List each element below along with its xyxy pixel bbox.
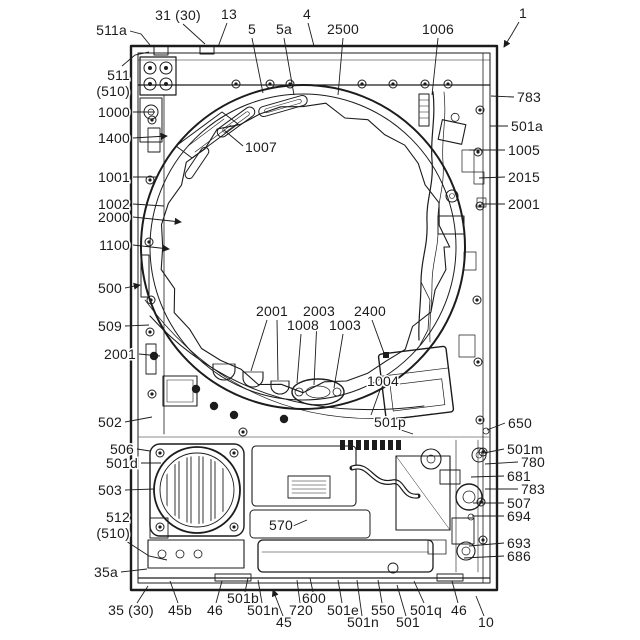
ref-number-shape: 1000 bbox=[98, 104, 130, 120]
ref-number-shape: 2015 bbox=[508, 169, 540, 185]
ref-label-46: 46 bbox=[451, 581, 467, 618]
tub-lower-tray bbox=[141, 255, 454, 420]
screws-shape bbox=[446, 82, 449, 85]
ref-label-503: 503 bbox=[98, 482, 154, 498]
screws-shape bbox=[478, 204, 481, 207]
ref-label-511a: 511a bbox=[96, 22, 150, 45]
ref-number-shape: 1007 bbox=[245, 139, 277, 155]
ref-number: 45b bbox=[168, 602, 192, 618]
toothed-strip-shape bbox=[340, 440, 345, 450]
leader-line bbox=[504, 22, 519, 47]
screws-shape bbox=[478, 108, 481, 111]
right-machinery-shape bbox=[428, 540, 446, 554]
fan-grille-shape bbox=[203, 452, 211, 530]
screws-shape bbox=[158, 451, 161, 454]
screws-shape bbox=[150, 118, 153, 121]
screws-shape bbox=[241, 430, 244, 433]
ref-number-shape: 694 bbox=[507, 508, 531, 524]
hinge-bracket-shape bbox=[164, 66, 168, 70]
screws-shape bbox=[481, 538, 484, 541]
screw-icon bbox=[210, 402, 218, 410]
center-ducts-shape bbox=[176, 550, 184, 558]
ref-number: 511(510) bbox=[96, 67, 130, 99]
ref-number: 1007 bbox=[245, 139, 277, 155]
ref-number-shape: 31 (30) bbox=[155, 7, 201, 23]
ref-label-550: 550 bbox=[371, 580, 395, 618]
center-ducts-shape bbox=[194, 550, 202, 558]
ref-label-46: 46 bbox=[207, 581, 223, 618]
center-ducts-shape bbox=[288, 476, 330, 498]
ref-number-shape: 501n bbox=[247, 602, 279, 618]
ref-number-shape: 1400 bbox=[98, 130, 130, 146]
screws-shape bbox=[391, 82, 394, 85]
hinge-bracket bbox=[140, 46, 214, 152]
ref-number: 1005 bbox=[508, 142, 540, 158]
toothed-strip-shape bbox=[372, 440, 377, 450]
ref-number-shape: 511a bbox=[96, 22, 127, 38]
ref-label-2015: 2015 bbox=[479, 169, 540, 185]
fan-grille-shape bbox=[215, 452, 223, 530]
toothed-strip-shape bbox=[396, 440, 401, 450]
ref-number: 511a bbox=[96, 22, 127, 38]
right-duct-shape bbox=[450, 194, 455, 199]
ref-number-shape: 35 (30) bbox=[108, 602, 154, 618]
right-machinery bbox=[340, 428, 489, 572]
leader-line bbox=[121, 569, 147, 572]
valve bbox=[438, 111, 468, 144]
fan-grille-shape bbox=[191, 452, 199, 530]
leader-line bbox=[218, 23, 227, 47]
ref-number: 35a bbox=[94, 564, 118, 580]
ref-number: 10 bbox=[478, 614, 494, 630]
screws-shape bbox=[476, 360, 479, 363]
ref-number: 501q bbox=[410, 602, 442, 618]
screws-shape bbox=[423, 82, 426, 85]
ref-number-shape: 2400 bbox=[354, 303, 386, 319]
ref-number-shape: 1008 bbox=[287, 317, 319, 333]
drum-front-panel-shape bbox=[141, 85, 465, 409]
hinge-bracket-shape bbox=[164, 82, 168, 86]
ref-number-shape: 501q bbox=[410, 602, 442, 618]
ref-number: 550 bbox=[371, 602, 395, 618]
leader-line bbox=[293, 520, 307, 526]
drum-front-panel-shape bbox=[161, 103, 450, 393]
ref-number-shape: 10 bbox=[478, 614, 494, 630]
ref-number: 13 bbox=[221, 6, 237, 22]
ref-number: 501p bbox=[374, 414, 406, 430]
ref-number: 1100 bbox=[99, 237, 130, 253]
ref-label-13: 13 bbox=[218, 6, 237, 47]
leader-line bbox=[414, 581, 424, 603]
screws-shape bbox=[232, 525, 235, 528]
ref-label-1400: 1400 bbox=[98, 130, 167, 146]
ref-number: 509 bbox=[98, 318, 122, 334]
fan-grille-shape bbox=[179, 452, 187, 530]
ref-number-shape: 13 bbox=[221, 6, 237, 22]
leader-line bbox=[452, 581, 458, 603]
drum-front-panel-shape bbox=[195, 125, 231, 152]
ref-number: 1006 bbox=[422, 21, 454, 37]
screws-shape bbox=[232, 451, 235, 454]
ref-number: 1004 bbox=[367, 373, 399, 389]
screws-shape bbox=[475, 298, 478, 301]
ref-label-500: 500 bbox=[98, 280, 140, 296]
ref-label-509: 509 bbox=[98, 318, 149, 334]
ref-number-shape: 1004 bbox=[367, 373, 399, 389]
screws-shape bbox=[288, 82, 291, 85]
toothed-strip-shape bbox=[364, 440, 369, 450]
ref-label-4: 4 bbox=[303, 6, 314, 46]
drum-front-panel-shape bbox=[419, 94, 429, 126]
ref-label-600: 600 bbox=[302, 578, 326, 606]
ref-number-shape: 35a bbox=[94, 564, 118, 580]
ref-number: 570 bbox=[269, 517, 293, 533]
drum-front-panel bbox=[141, 85, 465, 409]
screws-shape bbox=[478, 418, 481, 421]
ref-label-501q: 501q bbox=[410, 581, 442, 618]
ref-label-694: 694 bbox=[472, 508, 531, 524]
ref-number: 512(510) bbox=[96, 509, 130, 541]
ref-number: 35 (30) bbox=[108, 602, 154, 618]
tub-lower-tray-shape bbox=[333, 388, 341, 396]
screws-shape bbox=[147, 240, 150, 243]
ref-number: 4 bbox=[303, 6, 311, 22]
right-machinery-shape bbox=[421, 449, 441, 469]
leader-line bbox=[401, 430, 413, 434]
ref-number: 1400 bbox=[98, 130, 130, 146]
ref-label-511-510: 511(510) bbox=[96, 52, 149, 99]
ref-number-shape: 500 bbox=[98, 280, 122, 296]
vent-slot bbox=[258, 94, 309, 117]
ref-label-1001: 1001 bbox=[98, 169, 157, 185]
ref-number: 2001 bbox=[256, 303, 288, 319]
right-machinery-shape bbox=[452, 518, 474, 544]
ref-label-45b: 45b bbox=[168, 581, 192, 618]
screw-icon bbox=[230, 411, 238, 419]
ref-number: 501d bbox=[106, 455, 138, 471]
ref-label-2001: 2001 bbox=[251, 303, 288, 380]
ref-number: 502 bbox=[98, 414, 122, 430]
ref-number: 2015 bbox=[508, 169, 540, 185]
ref-number-shape: 1001 bbox=[98, 169, 130, 185]
screws-shape bbox=[360, 82, 363, 85]
leader-line bbox=[224, 130, 243, 146]
center-ducts-shape bbox=[250, 510, 370, 538]
ref-label-31-30: 31 (30) bbox=[155, 7, 205, 44]
ref-number-shape: 46 bbox=[451, 602, 467, 618]
ref-number: 600 bbox=[302, 590, 326, 606]
screws-shape bbox=[234, 82, 237, 85]
leader-line bbox=[334, 334, 343, 388]
ref-label-1: 1 bbox=[504, 5, 527, 47]
ref-number: 650 bbox=[508, 415, 532, 431]
screw-icon bbox=[280, 415, 288, 423]
ref-number-shape: 650 bbox=[508, 415, 532, 431]
ref-number: 2400 bbox=[354, 303, 386, 319]
ref-label-650: 650 bbox=[487, 415, 532, 431]
ref-number: 2001 bbox=[508, 196, 540, 212]
leader-line bbox=[122, 52, 149, 66]
right-machinery-shape bbox=[468, 514, 474, 520]
drum-front-panel-shape bbox=[188, 119, 224, 146]
leader-line bbox=[297, 334, 301, 383]
ref-label-570: 570 bbox=[269, 517, 307, 533]
ref-number-shape: 46 bbox=[207, 602, 223, 618]
leader-line bbox=[137, 449, 150, 451]
ref-number: 686 bbox=[507, 548, 531, 564]
vent-slot bbox=[184, 146, 211, 180]
right-duct-shape bbox=[462, 150, 474, 172]
ref-number: 501a bbox=[511, 118, 543, 134]
ref-number: 1001 bbox=[98, 169, 130, 185]
ref-number: 1 bbox=[519, 5, 527, 21]
ref-number: 2500 bbox=[327, 21, 359, 37]
ref-number: 1008 bbox=[287, 317, 319, 333]
ref-label-783: 783 bbox=[491, 89, 541, 105]
ref-number: 5 bbox=[248, 21, 256, 37]
toothed-strip-shape bbox=[380, 440, 385, 450]
ref-number-shape: 570 bbox=[269, 517, 293, 533]
ref-number-shape: 600 bbox=[302, 590, 326, 606]
right-machinery-shape bbox=[462, 547, 470, 555]
leader-line bbox=[251, 320, 267, 371]
hinge-bracket-shape bbox=[148, 66, 152, 70]
ref-number: 46 bbox=[451, 602, 467, 618]
ref-number: 5a bbox=[276, 21, 292, 37]
ref-number: 501n bbox=[247, 602, 279, 618]
screws-shape bbox=[149, 298, 152, 301]
hinge-bracket-shape bbox=[140, 57, 176, 95]
ref-number-shape: 501d bbox=[106, 455, 138, 471]
ref-number: 2000 bbox=[98, 209, 130, 225]
screws-shape bbox=[148, 330, 151, 333]
ref-number-shape: 1006 bbox=[422, 21, 454, 37]
hinge-bracket-shape bbox=[154, 46, 168, 55]
ref-number-shape: 686 bbox=[507, 548, 531, 564]
screws-shape bbox=[148, 178, 151, 181]
ref-number-shape: 4 bbox=[303, 6, 311, 22]
ref-number-shape: 501a bbox=[511, 118, 543, 134]
ref-number: 1000 bbox=[98, 104, 130, 120]
right-duct-shape bbox=[459, 335, 475, 357]
center-ducts-shape bbox=[148, 540, 244, 568]
hinge-bracket-shape bbox=[148, 82, 152, 86]
ref-label-502: 502 bbox=[98, 414, 152, 430]
ref-number: 2001 bbox=[104, 346, 136, 362]
center-ducts-shape bbox=[258, 540, 433, 572]
ref-number-shape: 503 bbox=[98, 482, 122, 498]
leader-line bbox=[137, 586, 148, 603]
tub-lower-tray-shape bbox=[163, 376, 197, 406]
leader-line bbox=[471, 476, 504, 477]
ref-number-shape: 45b bbox=[168, 602, 192, 618]
ref-number-shape: 512 bbox=[106, 509, 130, 525]
ref-number-shape: 2001 bbox=[508, 196, 540, 212]
ref-number-shape: 5 bbox=[248, 21, 256, 37]
ref-number: 500 bbox=[98, 280, 122, 296]
ref-label-2003: 2003 bbox=[303, 303, 335, 385]
leader-line bbox=[277, 320, 278, 380]
leader-line bbox=[491, 96, 514, 97]
leader-line bbox=[476, 596, 484, 616]
leader-line bbox=[130, 31, 150, 45]
screws-shape bbox=[268, 82, 271, 85]
ref-number: 694 bbox=[507, 508, 531, 524]
tub-lower-tray-shape bbox=[271, 381, 289, 394]
ref-number: 783 bbox=[517, 89, 541, 105]
leader-line bbox=[125, 325, 149, 326]
ref-number-shape: (510) bbox=[96, 525, 130, 541]
right-machinery-shape bbox=[463, 491, 475, 503]
tub-lower-tray-shape bbox=[306, 386, 330, 398]
ref-number-shape: 2000 bbox=[98, 209, 130, 225]
screws-shape bbox=[476, 150, 479, 153]
ref-label-2500: 2500 bbox=[327, 21, 359, 95]
ref-label-2000: 2000 bbox=[98, 209, 181, 225]
ref-number-shape: 501p bbox=[374, 414, 406, 430]
ref-number: 1003 bbox=[329, 317, 361, 333]
fan-assembly bbox=[150, 444, 244, 536]
vent-slot-shape bbox=[258, 94, 309, 117]
toothed-strip-shape bbox=[388, 440, 393, 450]
leader-line bbox=[216, 581, 222, 603]
toothed-strip bbox=[340, 440, 401, 450]
ref-number-shape: 1100 bbox=[99, 237, 130, 253]
vent-slot-shape bbox=[184, 146, 211, 180]
ref-number-shape: 511 bbox=[107, 67, 130, 83]
ref-label-1100: 1100 bbox=[99, 237, 169, 253]
center-ducts-shape bbox=[158, 550, 166, 558]
leader-line bbox=[183, 24, 205, 44]
ref-number-shape: (510) bbox=[96, 83, 130, 99]
leader-line bbox=[372, 320, 384, 353]
ref-number-shape: 783 bbox=[517, 89, 541, 105]
right-duct bbox=[419, 92, 486, 357]
leader-line bbox=[308, 23, 314, 46]
ref-number-shape: 509 bbox=[98, 318, 122, 334]
fan-assembly-shape bbox=[150, 444, 244, 536]
valve-shape bbox=[450, 113, 459, 122]
patent-figure: 511a31 (30)1355a4250010061511(510)100014… bbox=[0, 0, 640, 640]
ref-number: 503 bbox=[98, 482, 122, 498]
ref-label-501d: 501d bbox=[106, 455, 161, 471]
ref-label-5: 5 bbox=[248, 21, 263, 93]
ref-number: 46 bbox=[207, 602, 223, 618]
ref-number-shape: 5a bbox=[276, 21, 292, 37]
fan-grille bbox=[167, 452, 223, 530]
ref-number: 31 (30) bbox=[155, 7, 201, 23]
screws-shape bbox=[158, 525, 161, 528]
ref-label-10: 10 bbox=[476, 596, 494, 630]
valve-shape bbox=[438, 120, 466, 145]
ref-label-1007: 1007 bbox=[224, 130, 277, 155]
leader-line bbox=[170, 581, 178, 603]
ref-number-shape: 1003 bbox=[329, 317, 361, 333]
ref-number-shape: 550 bbox=[371, 602, 395, 618]
screw-icon bbox=[192, 385, 200, 393]
toothed-strip-shape bbox=[356, 440, 361, 450]
screws-shape bbox=[150, 392, 153, 395]
hinge-bracket-shape bbox=[148, 128, 160, 152]
ref-number-shape: 1 bbox=[519, 5, 527, 21]
ref-number-shape: 2001 bbox=[104, 346, 136, 362]
ref-number-shape: 1005 bbox=[508, 142, 540, 158]
ref-label-501e: 501e bbox=[327, 580, 359, 618]
ref-number-shape: 2001 bbox=[256, 303, 288, 319]
ref-number-shape: 502 bbox=[98, 414, 122, 430]
ref-number-shape: 2500 bbox=[327, 21, 359, 37]
leader-line bbox=[133, 217, 181, 222]
toothed-strip-shape bbox=[348, 440, 353, 450]
right-machinery-shape bbox=[483, 428, 489, 434]
tub-lower-tray-shape bbox=[167, 380, 193, 402]
